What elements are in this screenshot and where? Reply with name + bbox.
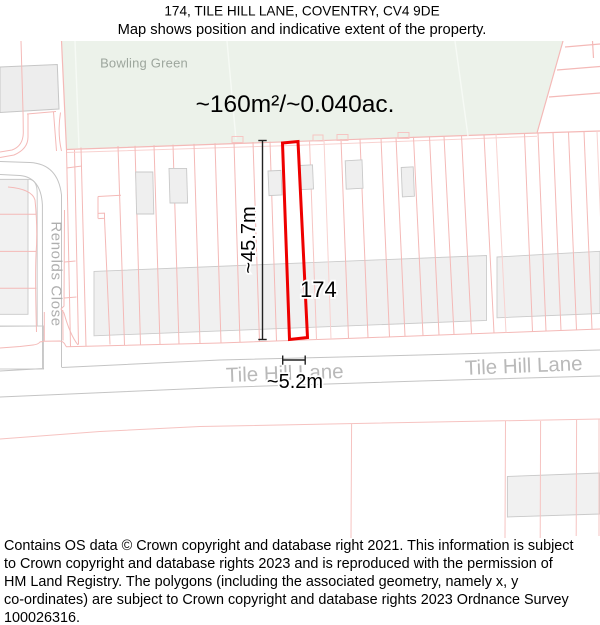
svg-text:Contains OS data © Crown copyr: Contains OS data © Crown copyright and d…	[4, 538, 573, 554]
svg-text:174: 174	[300, 277, 337, 302]
svg-text:Bowling Green: Bowling Green	[100, 56, 188, 71]
svg-text:~45.7m: ~45.7m	[238, 206, 260, 273]
svg-text:174, TILE HILL LANE, COVENTRY,: 174, TILE HILL LANE, COVENTRY, CV4 9DE	[164, 4, 439, 19]
svg-text:~5.2m: ~5.2m	[267, 371, 323, 393]
svg-text:Tile Hill Lane: Tile Hill Lane	[464, 352, 583, 380]
svg-text:100026316.: 100026316.	[4, 610, 80, 625]
svg-text:to Crown copyright and databas: to Crown copyright and database rights 2…	[4, 556, 554, 572]
svg-text:~160m²/~0.040ac.: ~160m²/~0.040ac.	[196, 91, 395, 118]
svg-text:co-ordinates) are subject to C: co-ordinates) are subject to Crown copyr…	[4, 592, 570, 608]
svg-text:Map shows position and indicat: Map shows position and indicative extent…	[118, 22, 487, 38]
svg-text:HM Land Registry. The polygons: HM Land Registry. The polygons (includin…	[4, 574, 519, 590]
